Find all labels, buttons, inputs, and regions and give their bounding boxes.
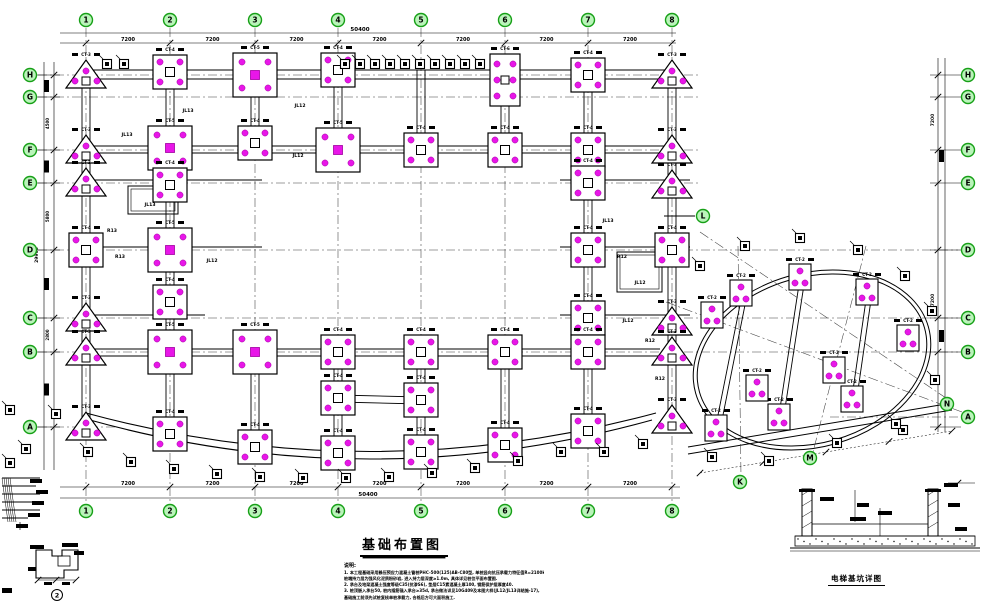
column-stub xyxy=(251,443,260,452)
pad-core xyxy=(478,62,482,66)
pile-dot xyxy=(658,153,664,159)
grid-bubble: 4 xyxy=(332,14,345,27)
detail-number: 2 xyxy=(55,592,60,600)
pile-cap: CT-4 xyxy=(571,406,605,448)
bubble-label: 4 xyxy=(335,507,340,516)
annotation-mark xyxy=(658,128,664,131)
pad-tick xyxy=(2,401,6,405)
dim-text: 4500 xyxy=(45,118,50,129)
annotation-mark xyxy=(346,328,352,331)
pile-dot xyxy=(575,438,581,444)
grid-bubble: 6 xyxy=(499,14,512,27)
pile-dot xyxy=(242,454,248,460)
bubble-label: H xyxy=(27,71,33,80)
column-stub xyxy=(166,298,175,307)
pile-dot xyxy=(325,460,331,466)
pad-core xyxy=(473,466,477,470)
pad-footing xyxy=(927,371,940,385)
pad-footing xyxy=(457,55,470,69)
annotation-mark xyxy=(574,226,580,229)
bubble-label: 5 xyxy=(418,16,423,25)
annotation-mark xyxy=(94,330,100,333)
pile-dot xyxy=(72,78,78,84)
pile-dot xyxy=(177,79,183,85)
pad-tick xyxy=(829,434,833,438)
pile-dot xyxy=(831,361,837,367)
pad-footing xyxy=(792,229,805,243)
pile-dot xyxy=(792,280,798,286)
annotation-mark xyxy=(680,226,686,229)
annotation-mark xyxy=(178,48,184,51)
slab-dot xyxy=(869,538,870,539)
annotation-mark xyxy=(156,161,162,164)
annotation-mark xyxy=(94,296,100,299)
pad-core xyxy=(172,467,176,471)
pile-dot xyxy=(575,257,581,263)
cap-tag: CT-5 xyxy=(250,322,260,327)
bubble-label: F xyxy=(965,146,970,155)
annotation-mark xyxy=(324,328,330,331)
dim-text: 6500 xyxy=(45,384,50,395)
dim-tick xyxy=(697,470,703,476)
pile-dot xyxy=(709,306,715,312)
pile-dot xyxy=(575,359,581,365)
pad-footing xyxy=(209,465,222,479)
pad-tick xyxy=(48,405,52,409)
cap-tag: CT-3 xyxy=(667,397,677,402)
pile-dot xyxy=(94,153,100,159)
pile-dot xyxy=(492,137,498,143)
pile-dot xyxy=(575,82,581,88)
wall-cap xyxy=(925,489,941,492)
pile-dot xyxy=(94,186,100,192)
pad-footing xyxy=(850,241,863,255)
pile-dot xyxy=(157,192,163,198)
cap-tag: CT-3 xyxy=(81,295,91,300)
annotation-mark xyxy=(156,48,162,51)
dim-tick xyxy=(823,449,829,455)
pile-dot xyxy=(844,402,850,408)
pile-dot xyxy=(345,339,351,345)
annotation-mark xyxy=(30,545,44,549)
annotation-mark xyxy=(156,323,162,326)
pile-cap: CT-5 xyxy=(148,220,192,272)
pad-core xyxy=(373,62,377,66)
pile-dot xyxy=(322,160,328,166)
pile-cap: CT-2 xyxy=(765,397,793,430)
pile-dot xyxy=(428,439,434,445)
pile-dot xyxy=(325,339,331,345)
column-stub xyxy=(166,181,175,190)
cap-tag: CT-2 xyxy=(795,257,805,262)
dim-text: 7200 xyxy=(623,481,637,487)
pile-cap: CT-4 xyxy=(404,427,438,469)
pile-dot xyxy=(93,257,99,263)
pile-dot xyxy=(262,454,268,460)
column-stub xyxy=(668,77,676,85)
cap-tag: CT-4 xyxy=(416,125,426,130)
pile-dot xyxy=(575,305,581,311)
pile-dot xyxy=(669,315,675,321)
annotation-mark xyxy=(62,543,78,547)
pile-cap: CT-4 xyxy=(655,225,689,267)
pile-dot xyxy=(325,57,331,63)
pad-core xyxy=(641,442,645,446)
wall-cap xyxy=(799,489,815,492)
column-stub xyxy=(334,449,343,458)
bubble-label: C xyxy=(965,314,971,323)
cap-tag: CT-4 xyxy=(500,420,510,425)
annotation-mark xyxy=(263,423,269,426)
pile-dot xyxy=(713,419,719,425)
pile-dot xyxy=(510,61,516,67)
pile-dot xyxy=(492,157,498,163)
bubble-label: L xyxy=(701,212,706,221)
foundation-plan-canvas: 7200720072007200720072007200720072007200… xyxy=(0,0,1000,604)
pad-core xyxy=(710,455,714,459)
pile-dot xyxy=(154,260,160,266)
slab-dot xyxy=(905,538,906,539)
column-stub xyxy=(584,146,593,155)
pile-dot xyxy=(157,59,163,65)
grid-bubble: 8 xyxy=(666,14,679,27)
pile-dot xyxy=(325,440,331,446)
pile-dot xyxy=(154,132,160,138)
pad-footing xyxy=(166,460,179,474)
pile-dot xyxy=(408,387,414,393)
notes-block: 说明: 1. 本工程基础采用静压预应力混凝土管桩PHC-500(125)AB-C… xyxy=(344,562,544,601)
pile-dot xyxy=(177,421,183,427)
pile-dot xyxy=(658,188,664,194)
column-stub xyxy=(501,348,510,357)
annotation-mark xyxy=(787,398,793,401)
pad-footing xyxy=(2,401,15,415)
pile-dot xyxy=(94,430,100,436)
pad-core xyxy=(343,62,347,66)
annotation-mark xyxy=(513,421,519,424)
bubble-label: 8 xyxy=(669,507,674,516)
wall-base-detail xyxy=(2,478,48,530)
bubble-label: 7 xyxy=(585,507,590,516)
pad-footing xyxy=(427,55,440,69)
annotation-mark xyxy=(853,273,859,276)
cap-tag: CT-2 xyxy=(711,408,721,413)
slab-dot xyxy=(947,541,948,542)
annotation-mark xyxy=(72,53,78,56)
bubble-label: A xyxy=(27,423,33,432)
dim-tick xyxy=(949,428,955,434)
note-line: 基础施工前须先试桩复核单桩承载力, 合格后方可大面积施工. xyxy=(344,595,544,601)
pad-core xyxy=(24,447,28,451)
pile-dot xyxy=(575,339,581,345)
annotation-mark xyxy=(156,410,162,413)
pile-dot xyxy=(905,329,911,335)
bubble-label: 6 xyxy=(502,507,507,516)
dim-text: 7200 xyxy=(206,37,220,43)
wing-chord xyxy=(779,278,800,415)
dim-total-text: 50400 xyxy=(358,492,377,498)
annotation-mark xyxy=(74,551,84,555)
pad-core xyxy=(430,471,434,475)
pile-dot xyxy=(428,407,434,413)
pile-dot xyxy=(408,157,414,163)
pad-footing xyxy=(467,459,480,473)
pad-tick xyxy=(792,229,796,233)
bubble-label: 1 xyxy=(83,507,88,516)
pad-footing xyxy=(116,55,129,69)
pad-core xyxy=(433,62,437,66)
pile-dot xyxy=(680,423,686,429)
column-stub xyxy=(668,246,677,255)
annotation-mark xyxy=(513,126,519,129)
slab-dot xyxy=(845,543,846,544)
dim-text: 7200 xyxy=(930,294,936,307)
annotation-mark xyxy=(28,567,36,571)
annotation-mark xyxy=(32,501,44,505)
pile-cap: CT-6 xyxy=(490,46,520,106)
pile-dot xyxy=(575,237,581,243)
annotation-mark xyxy=(939,150,944,162)
cap-tag: CT-2 xyxy=(862,272,872,277)
dim-text: 7200 xyxy=(623,37,637,43)
pit-wall xyxy=(928,489,938,536)
cap-tag: CT-3 xyxy=(667,299,677,304)
pile-dot xyxy=(348,134,354,140)
pile-dot xyxy=(781,420,787,426)
pad-tick xyxy=(166,460,170,464)
annotation-mark xyxy=(658,398,664,401)
pile-dot xyxy=(72,321,78,327)
grid-bubble: M xyxy=(804,452,817,465)
cap-tag: CT-3 xyxy=(81,160,91,165)
bubble-label: A xyxy=(965,413,971,422)
pile-dot xyxy=(714,318,720,324)
pile-dot xyxy=(575,62,581,68)
column-stub xyxy=(584,427,593,436)
grid-bubble: K xyxy=(734,476,747,489)
pile-dot xyxy=(826,373,832,379)
cap-tag: CT-4 xyxy=(667,225,677,230)
annotation-mark xyxy=(241,423,247,426)
annotation-mark xyxy=(916,319,922,322)
pad-footing xyxy=(553,443,566,457)
annotation-mark xyxy=(574,159,580,162)
pile-cap: CT-4 xyxy=(321,327,355,369)
slab-dot xyxy=(827,543,828,544)
pile-dot xyxy=(408,339,414,345)
grid-bubble: F xyxy=(24,144,37,157)
pad-footing xyxy=(18,440,31,454)
dim-text: 7200 xyxy=(121,37,135,43)
pile-dot xyxy=(738,284,744,290)
pile-dot xyxy=(595,237,601,243)
dim-text: 7200 xyxy=(373,37,387,43)
annotation-mark xyxy=(724,409,730,412)
beam-label: R13 xyxy=(115,254,125,260)
pile-dot xyxy=(797,268,803,274)
pile-dot xyxy=(595,82,601,88)
pile-cap: CT-2 xyxy=(786,257,814,290)
pile-dot xyxy=(345,359,351,365)
beam-label: JL13 xyxy=(181,108,193,114)
pile-dot xyxy=(708,431,714,437)
annotation-mark xyxy=(156,221,162,224)
pile-dot xyxy=(242,130,248,136)
pile-cap: CT-5 xyxy=(233,322,277,374)
slab-dot xyxy=(959,538,960,539)
pile-cap: CT-2 xyxy=(820,350,848,383)
pile-cap: CT-4 xyxy=(321,428,355,470)
pile-dot xyxy=(512,157,518,163)
column-stub xyxy=(501,76,509,84)
cap-tag: CT-2 xyxy=(774,397,784,402)
pad-tick xyxy=(381,468,385,472)
pad-tick xyxy=(2,454,6,458)
cap-tag: CT-4 xyxy=(583,225,593,230)
drawing-title: 基础布置图 xyxy=(360,534,448,557)
pad-footing xyxy=(338,469,351,483)
annotation-mark xyxy=(743,369,749,372)
cap-tag: CT-4 xyxy=(416,327,426,332)
pile-dot xyxy=(494,61,500,67)
pad-core xyxy=(258,475,262,479)
pile-cap: CT-4 xyxy=(69,225,103,267)
pile-dot xyxy=(239,362,245,368)
grid-bubble: L xyxy=(697,210,710,223)
beam-label: R12 xyxy=(655,376,665,382)
slab-dot xyxy=(881,543,882,544)
cap-tag: CT-4 xyxy=(333,373,343,378)
beam-label: R12 xyxy=(645,338,655,344)
annotation-mark xyxy=(72,128,78,131)
pad-footing xyxy=(382,55,395,69)
pile-dot xyxy=(595,257,601,263)
pile-dot xyxy=(157,421,163,427)
pile-dot xyxy=(669,413,675,419)
grid-bubble: G xyxy=(24,91,37,104)
dim-text: 7200 xyxy=(930,114,936,127)
column-stub xyxy=(166,246,175,255)
dim-text: 7200 xyxy=(456,481,470,487)
pile-dot xyxy=(854,402,860,408)
pad-core xyxy=(54,412,58,416)
cap-tag: CT-3 xyxy=(667,127,677,132)
pit-wall xyxy=(802,489,812,536)
annotation-mark xyxy=(429,126,435,129)
pile-cap: CT-2 xyxy=(702,408,730,441)
annotation-mark xyxy=(658,163,664,166)
bubble-label: E xyxy=(965,179,970,188)
annotation-mark xyxy=(939,330,944,342)
column-stub xyxy=(584,348,593,357)
grid-bubble: 3 xyxy=(249,505,262,518)
pile-dot xyxy=(679,257,685,263)
bubble-label: 8 xyxy=(669,16,674,25)
column-stub xyxy=(82,246,91,255)
cap-tag: CT-4 xyxy=(583,50,593,55)
pad-footing xyxy=(737,237,750,251)
cap-tag: CT-4 xyxy=(250,422,260,427)
cap-tag: CT-3 xyxy=(667,162,677,167)
pile-dot xyxy=(242,434,248,440)
pad-tick xyxy=(367,55,371,59)
pad-tick xyxy=(427,55,431,59)
pad-core xyxy=(559,450,563,454)
pile-dot xyxy=(595,137,601,143)
slab-dot xyxy=(923,538,924,539)
pad-tick xyxy=(209,465,213,469)
pile-dot xyxy=(177,172,183,178)
wing-axis-line xyxy=(813,246,866,452)
cap-tag: CT-4 xyxy=(583,406,593,411)
notes-heading: 说明: xyxy=(344,562,544,569)
wing-chord xyxy=(784,278,805,415)
annotation-mark xyxy=(178,119,184,122)
pad-core xyxy=(901,428,905,432)
pile-dot xyxy=(180,260,186,266)
pad-core xyxy=(418,62,422,66)
column-stub xyxy=(82,185,90,193)
pile-dot xyxy=(322,134,328,140)
pad-footing xyxy=(897,267,910,281)
annotation-mark xyxy=(875,273,881,276)
bubble-label: 5 xyxy=(418,507,423,516)
pile-dot xyxy=(669,68,675,74)
annotation-mark xyxy=(94,128,100,131)
pile-dot xyxy=(265,362,271,368)
note-line: 3. 桩顶嵌入承台50, 桩内插筋锚入承台≥35d, 承台做法详见10G409及… xyxy=(344,588,544,594)
pile-dot xyxy=(759,391,765,397)
annotation-mark xyxy=(596,159,602,162)
pile-dot xyxy=(262,130,268,136)
pile-dot xyxy=(680,78,686,84)
grid-bubble: 1 xyxy=(80,14,93,27)
pad-core xyxy=(8,461,12,465)
pile-dot xyxy=(869,295,875,301)
bubble-label: B xyxy=(27,348,33,357)
annotation-mark xyxy=(241,323,247,326)
column-stub xyxy=(584,246,593,255)
pile-dot xyxy=(428,359,434,365)
pile-dot xyxy=(157,309,163,315)
slab-dot xyxy=(821,541,822,542)
column-stub xyxy=(417,348,426,357)
annotation-mark xyxy=(491,47,497,50)
annotation-mark xyxy=(842,351,848,354)
pile-dot xyxy=(325,77,331,83)
pile-dot xyxy=(325,385,331,391)
annotation-mark xyxy=(62,582,70,585)
grid-bubble: 3 xyxy=(249,14,262,27)
pile-dot xyxy=(680,153,686,159)
grid-bubble: B xyxy=(962,346,975,359)
slab-dot xyxy=(857,541,858,542)
pile-dot xyxy=(177,59,183,65)
slab-dot xyxy=(893,541,894,542)
pile-dot xyxy=(512,432,518,438)
grid-bubble: 4 xyxy=(332,505,345,518)
dim-text: 7200 xyxy=(456,37,470,43)
slab-dot xyxy=(965,541,966,542)
annotation-mark xyxy=(860,380,866,383)
pile-dot xyxy=(72,430,78,436)
grid-bubble: 8 xyxy=(666,505,679,518)
pile-dot xyxy=(680,188,686,194)
pad-core xyxy=(698,264,702,268)
grid-bubble: C xyxy=(962,312,975,325)
slab-dot xyxy=(863,543,864,544)
pile-dot xyxy=(157,79,163,85)
